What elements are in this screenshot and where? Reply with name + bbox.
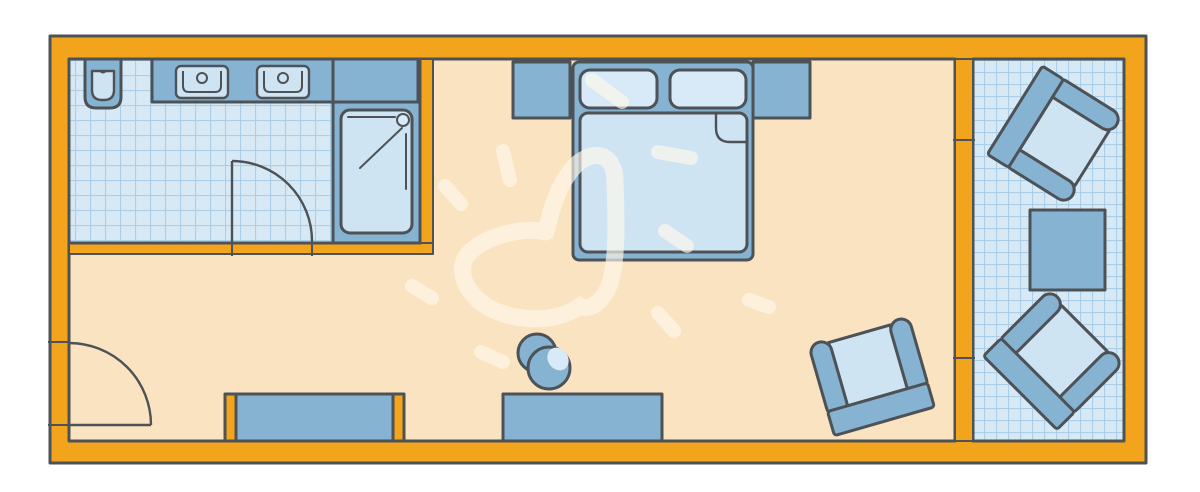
nightstand-right bbox=[753, 62, 810, 118]
toilet-bowl bbox=[92, 71, 114, 100]
wardrobe bbox=[225, 394, 404, 441]
shower bbox=[333, 102, 420, 243]
balcony-table bbox=[1030, 210, 1105, 290]
pillow-right bbox=[670, 70, 746, 108]
bathroom-bottom-wall bbox=[69, 243, 433, 254]
floor-plan-stage bbox=[0, 0, 1200, 492]
shower-head bbox=[397, 114, 409, 126]
floor-plan bbox=[0, 0, 1200, 492]
sink-right bbox=[257, 66, 309, 98]
vanity bbox=[152, 59, 418, 102]
bathroom-right-wall bbox=[420, 59, 433, 254]
wardrobe-front bbox=[236, 394, 393, 441]
bathroom bbox=[69, 59, 433, 256]
nightstand-left bbox=[513, 62, 570, 118]
toilet bbox=[85, 59, 121, 108]
sink-left bbox=[176, 66, 228, 98]
sideboard bbox=[503, 394, 662, 441]
balcony-partition-wall bbox=[955, 59, 973, 441]
